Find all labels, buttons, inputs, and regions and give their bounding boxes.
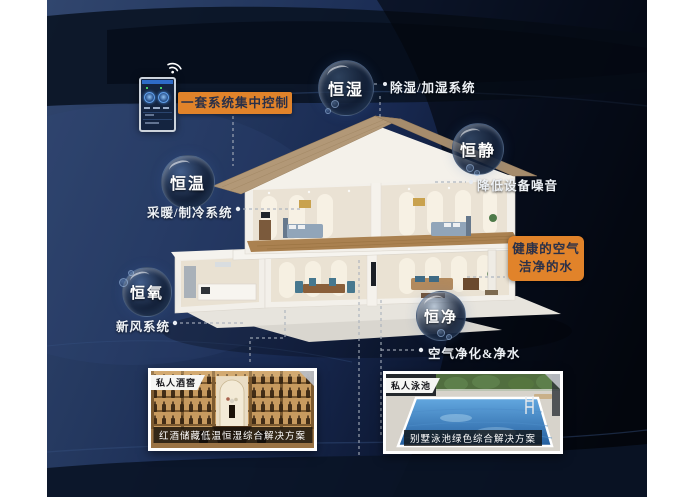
bubble-constant-temperature: 恒温: [161, 155, 215, 209]
wine-cellar-tag: 私人酒窖: [151, 375, 205, 390]
annotation-air-water-purify: 空气净化&净水: [428, 343, 520, 362]
smart-control-panel: [139, 77, 176, 132]
wine-cellar-photo: 私人酒窖 红酒储藏低温恒湿综合解决方案: [148, 368, 317, 451]
panel-divider: [143, 112, 172, 113]
mini-bubble: [128, 270, 134, 276]
infographic-canvas: 一套系统集中控制 健康的空气 洁净的水 恒湿 恒静 恒温 恒氧 恒净 除湿/加湿…: [47, 0, 647, 497]
wine-cellar-caption: 红酒储藏低温恒湿综合解决方案: [153, 427, 312, 443]
mini-bubble: [331, 100, 339, 108]
mini-bubble: [119, 278, 128, 287]
annotation-dehumidify-humidify: 除湿/加湿系统: [390, 77, 475, 96]
status-dot: [146, 87, 148, 89]
pool-photo: 私人泳池 别墅泳池绿色综合解决方案: [383, 371, 563, 454]
pool-tag: 私人泳池: [386, 378, 440, 393]
central-control-label: 一套系统集中控制: [178, 92, 292, 114]
bubble-constant-quiet: 恒静: [452, 123, 504, 175]
panel-readout: [144, 107, 150, 109]
annotation-reduce-noise: 降低设备噪音: [477, 175, 558, 194]
highlight-line2: 洁净的水: [508, 259, 584, 277]
annotation-heating-cooling: 采暖/制冷系统: [147, 202, 232, 221]
healthy-air-water-box: 健康的空气 洁净的水: [508, 236, 584, 281]
corner-ribbon: [299, 371, 314, 386]
panel-readout: [145, 114, 154, 116]
temperature-dial: [144, 92, 155, 103]
mini-bubble: [446, 334, 452, 340]
humidity-dial: [158, 92, 169, 103]
panel-header: [142, 80, 173, 84]
mini-bubble: [325, 108, 331, 114]
mini-bubble: [437, 329, 445, 337]
highlight-line1: 健康的空气: [508, 241, 584, 259]
pool-caption: 别墅泳池绿色综合解决方案: [404, 430, 542, 446]
mid-slab-and-porch: [233, 241, 517, 295]
mini-bubble: [466, 164, 474, 172]
poster-frame: 一套系统集中控制 健康的空气 洁净的水 恒湿 恒静 恒温 恒氧 恒净 除湿/加湿…: [0, 0, 700, 497]
panel-readout: [145, 122, 159, 124]
wifi-icon: [165, 57, 184, 76]
annotation-fresh-air: 新风系统: [116, 316, 170, 335]
status-dot: [160, 87, 162, 89]
ground-platforms: [175, 296, 561, 342]
corner-ribbon: [545, 374, 560, 389]
lower-floor: [171, 244, 515, 313]
panel-divider: [143, 119, 172, 120]
panel-readout: [153, 107, 160, 109]
panel-readout: [163, 107, 169, 109]
